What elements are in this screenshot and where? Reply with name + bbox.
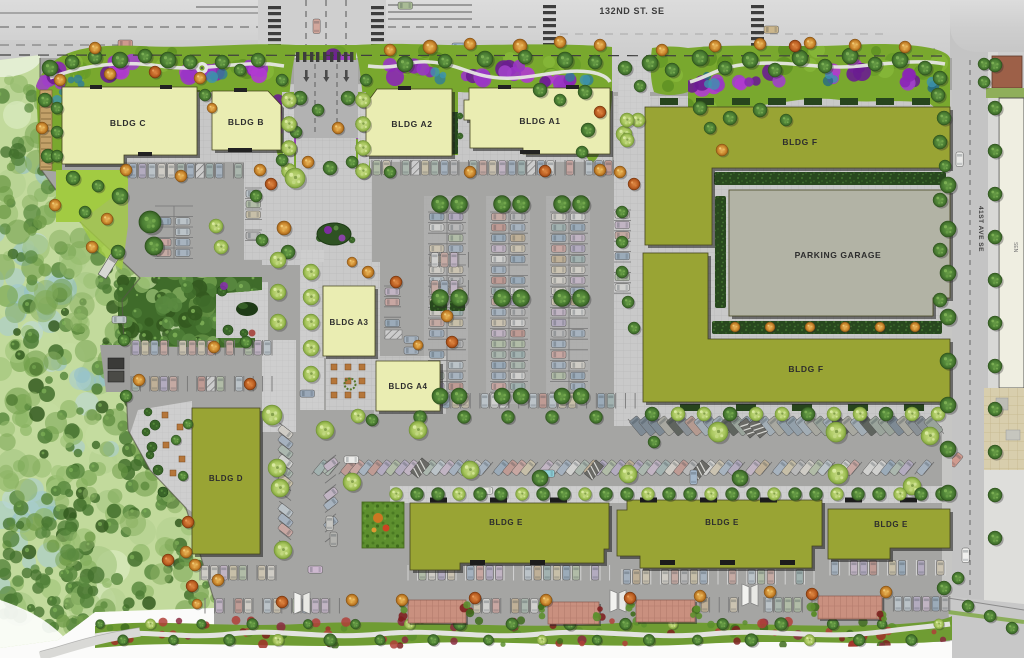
svg-text:BLDG A2: BLDG A2	[391, 119, 432, 129]
svg-text:41ST AVE SE: 41ST AVE SE	[977, 206, 984, 252]
svg-text:BLDG F: BLDG F	[788, 364, 823, 374]
svg-text:BLDG E: BLDG E	[489, 518, 523, 527]
svg-text:BLDG F: BLDG F	[782, 137, 817, 147]
svg-text:BLDG D: BLDG D	[209, 474, 243, 483]
svg-text:BLDG A4: BLDG A4	[388, 382, 427, 391]
svg-text:BLDG E: BLDG E	[705, 518, 739, 527]
svg-text:BLDG B: BLDG B	[228, 117, 264, 127]
svg-text:132ND ST. SE: 132ND ST. SE	[599, 6, 664, 16]
svg-text:SEN: SEN	[1012, 242, 1018, 253]
svg-text:BLDG A3: BLDG A3	[329, 318, 368, 327]
svg-text:BLDG A1: BLDG A1	[519, 116, 560, 126]
svg-text:BLDG E: BLDG E	[874, 520, 908, 529]
svg-text:BLDG C: BLDG C	[110, 118, 146, 128]
svg-text:PARKING GARAGE: PARKING GARAGE	[795, 250, 882, 260]
